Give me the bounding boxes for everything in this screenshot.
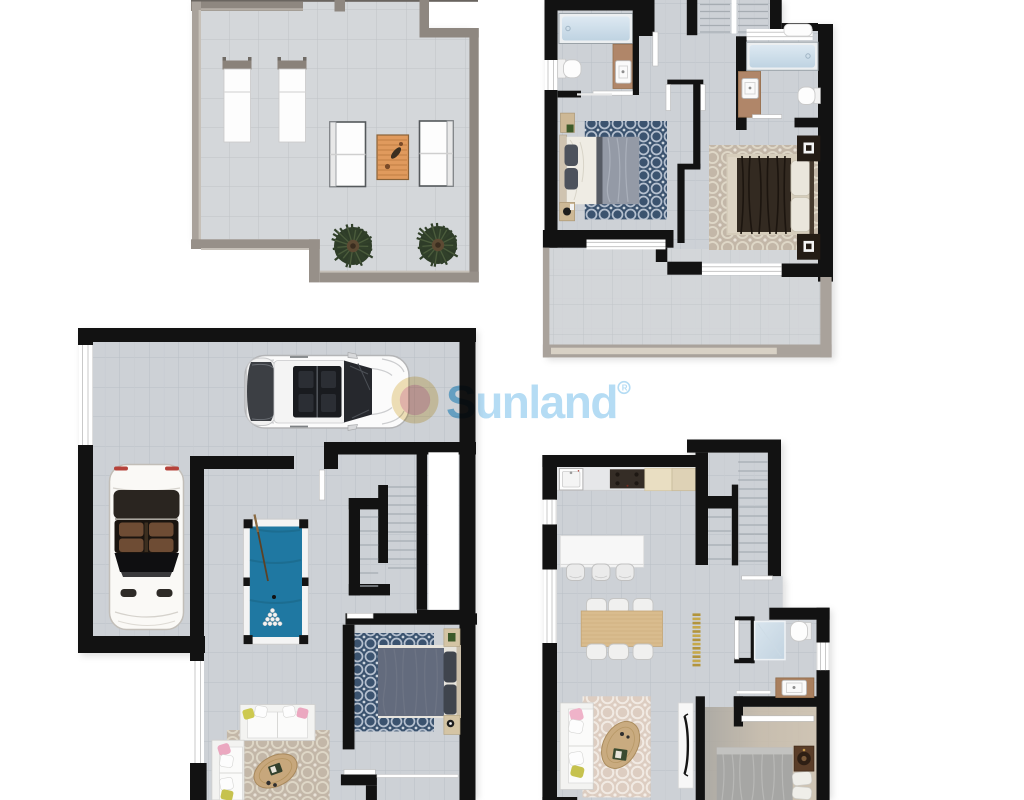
svg-text:R: R [622, 384, 628, 393]
svg-text:Sunland: Sunland [446, 376, 617, 428]
